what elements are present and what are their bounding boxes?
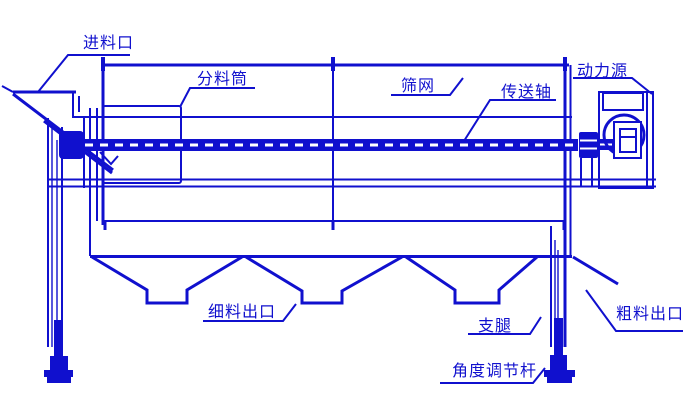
label-fine-outlet: 细料出口 <box>208 302 276 321</box>
screw-rod <box>54 320 63 358</box>
callout-transmission-shaft: 传送轴 <box>464 82 556 141</box>
callout-feed-inlet: 进料口 <box>38 33 134 92</box>
callout-power-source: 动力源 <box>573 61 652 94</box>
label-screen-mesh: 筛网 <box>401 76 435 95</box>
callout-support-leg: 支腿 <box>468 316 541 335</box>
callout-screen-mesh: 筛网 <box>391 76 463 95</box>
label-transmission-shaft: 传送轴 <box>501 82 552 101</box>
callout-coarse-outlet: 粗料出口 <box>586 290 684 331</box>
screw-nut <box>550 355 567 371</box>
callout-angle-rod: 角度调节杆 <box>440 361 545 383</box>
leader-line <box>180 88 255 107</box>
foot-flange <box>544 370 575 377</box>
callout-labels: 进料口 分料筒 筛网 传送轴 动力源 细料出口 支腿 粗料出口 <box>38 33 684 383</box>
screening-machine-diagram: 进料口 分料筒 筛网 传送轴 动力源 细料出口 支腿 粗料出口 <box>0 0 698 414</box>
line <box>2 86 13 92</box>
callout-distribution-cylinder: 分料筒 <box>180 69 255 107</box>
callout-fine-outlet: 细料出口 <box>203 302 296 321</box>
foot-base <box>47 377 71 383</box>
foot-base <box>547 377 572 383</box>
hopper-funnel-2 <box>246 257 402 303</box>
collection-hoppers <box>92 257 618 303</box>
motor-top-box <box>603 93 643 110</box>
label-support-leg: 支腿 <box>478 316 512 335</box>
hopper-funnel-3 <box>406 257 537 303</box>
label-distribution-cylinder: 分料筒 <box>197 69 248 88</box>
technical-drawing-canvas: 进料口 分料筒 筛网 传送轴 动力源 细料出口 支腿 粗料出口 <box>0 0 698 414</box>
label-coarse-outlet: 粗料出口 <box>616 304 684 323</box>
transmission-shaft-assembly <box>59 131 578 159</box>
screw-nut <box>50 356 68 371</box>
leader-line <box>464 100 556 141</box>
leader-line <box>38 55 130 92</box>
feed-inlet-hopper <box>2 86 118 173</box>
label-angle-rod: 角度调节杆 <box>452 361 537 380</box>
foot-flange <box>44 370 73 377</box>
drum-housing <box>48 57 656 347</box>
shaft-body <box>62 139 578 151</box>
shaft-coupling <box>579 132 613 186</box>
coarse-outlet-chute <box>573 257 618 284</box>
screw-rod <box>554 318 563 358</box>
label-feed-inlet: 进料口 <box>83 33 134 52</box>
hopper-funnel-1 <box>92 257 242 303</box>
coupling-block <box>579 132 598 158</box>
